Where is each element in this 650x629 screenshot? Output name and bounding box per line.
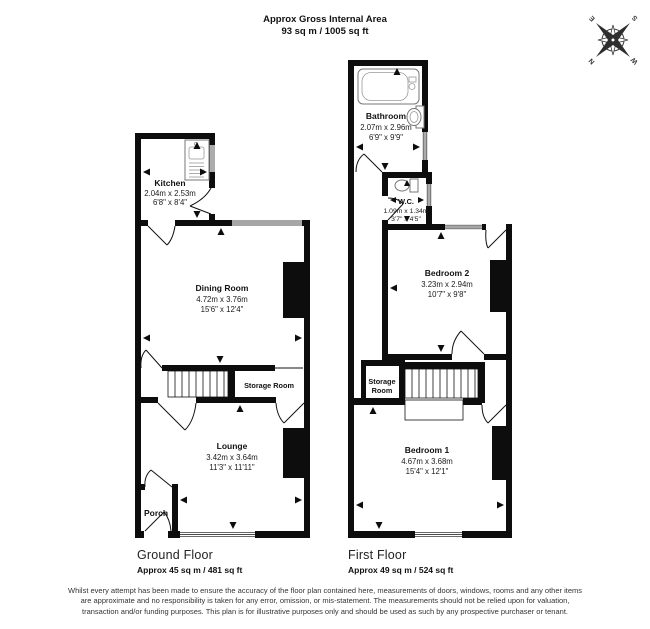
dining-metric-dims: 4.72m x 3.76m (196, 295, 248, 304)
ground-floor-area: Approx 45 sq m / 481 sq ft (137, 565, 242, 575)
dining-room-label: Dining Room (196, 283, 249, 293)
lounge-window (180, 531, 255, 538)
floor-plan-svg: Kitchen 2.04m x 2.53m 6'8" x 8'4" Dining… (0, 0, 650, 629)
bedroom1-window (415, 531, 462, 538)
kitchen-room-label: Kitchen (154, 178, 185, 188)
bathtub-icon (358, 69, 419, 104)
bathroom-window (422, 132, 428, 160)
lounge-imperial-dims: 11'3" x 11'11" (209, 463, 255, 472)
porch-inner-door (151, 470, 172, 487)
wc-room-label: W.C. (398, 197, 414, 206)
bedroom1-room-label: Bedroom 1 (405, 445, 450, 455)
ground-floor-caption: Ground Floor Approx 45 sq m / 481 sq ft (137, 548, 242, 575)
ground-floor-stairs (168, 371, 228, 397)
bedroom1-chimney-breast (492, 426, 506, 480)
bedroom1-metric-dims: 4.67m x 3.68m (401, 457, 453, 466)
kitchen-dining-door (148, 226, 167, 245)
dining-imperial-dims: 15'6" x 12'4" (201, 305, 244, 314)
bedroom2-room-label: Bedroom 2 (425, 268, 470, 278)
lounge-metric-dims: 3.42m x 3.64m (206, 453, 258, 462)
ground-floor-windows (180, 145, 302, 538)
compass-east-label: E (588, 14, 596, 22)
wc-metric-dims: 1.09m x 1.34m (384, 208, 429, 215)
ground-floor-name: Ground Floor (137, 548, 242, 562)
lounge-right-door (284, 403, 304, 423)
first-floor-name: First Floor (348, 548, 453, 562)
compass-icon: N E S W (567, 0, 650, 87)
bedroom2-top-door (488, 230, 506, 248)
lounge-left-door (158, 403, 185, 430)
lounge-chimney-breast (283, 428, 304, 478)
kitchen-window (209, 145, 215, 172)
first-floor-area: Approx 49 sq m / 524 sq ft (348, 565, 453, 575)
bathroom-metric-dims: 2.07m x 2.96m (360, 123, 412, 132)
first-floor-stairs (405, 369, 478, 420)
ground-floor-plan: Kitchen 2.04m x 2.53m 6'8" x 8'4" Dining… (135, 133, 310, 538)
bedroom2-imperial-dims: 10'7" x 9'8" (428, 290, 467, 299)
kitchen-metric-dims: 2.04m x 2.53m (144, 189, 196, 198)
dining-window (232, 220, 302, 226)
floorplan-page: Approx Gross Internal Area 93 sq m / 100… (0, 0, 650, 629)
stairwell-void (405, 400, 463, 420)
bedroom2-window (445, 224, 482, 230)
first-floor-caption: First Floor Approx 49 sq m / 524 sq ft (348, 548, 453, 575)
compass-north-label: N (588, 57, 597, 66)
first-floor-windows (415, 132, 482, 538)
porch-room-label: Porch (144, 508, 168, 518)
ground-floor-doors (141, 188, 304, 531)
compass-west-label: W (630, 55, 640, 65)
first-storage-label-line2: Room (372, 386, 393, 395)
kitchen-back-door (190, 206, 211, 214)
first-storage-label-line1: Storage (368, 377, 395, 386)
bathroom-door (364, 154, 382, 172)
bathroom-imperial-dims: 6'9" x 9'9" (369, 133, 403, 142)
bathroom-room-label: Bathroom (366, 111, 407, 121)
first-floor-plan: Bathroom 2.07m x 2.96m 6'9" x 9'9" W.C. … (348, 60, 512, 538)
bedroom1-door (488, 405, 506, 423)
kitchen-imperial-dims: 6'8" x 8'4" (153, 198, 187, 207)
dining-chimney-breast (283, 262, 304, 318)
wc-imperial-dims: 3'7" x 4'5" (391, 216, 421, 223)
wc-window (426, 184, 432, 206)
bedroom2-bottom-door (461, 331, 484, 354)
lounge-room-label: Lounge (217, 441, 248, 451)
dining-hall-door (146, 350, 162, 368)
bedroom1-imperial-dims: 15'4" x 12'1" (406, 467, 449, 476)
storage-room-label: Storage Room (244, 381, 294, 390)
bedroom2-metric-dims: 3.23m x 2.94m (421, 280, 473, 289)
compass-south-label: S (631, 13, 639, 21)
disclaimer-text: Whilst every attempt has been made to en… (63, 586, 587, 617)
